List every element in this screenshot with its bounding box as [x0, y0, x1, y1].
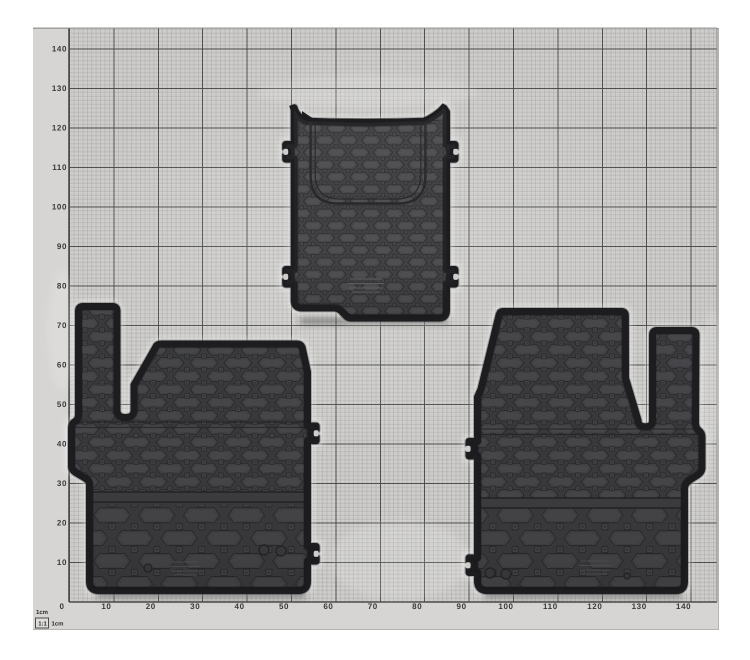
svg-text:50: 50 [57, 400, 67, 409]
svg-text:80: 80 [57, 281, 67, 290]
svg-text:100: 100 [498, 602, 513, 611]
svg-text:70: 70 [57, 321, 67, 330]
svg-text:10: 10 [101, 602, 111, 611]
svg-text:120: 120 [52, 123, 67, 132]
svg-text:110: 110 [52, 163, 67, 172]
svg-text:140: 140 [52, 44, 67, 53]
svg-text:20: 20 [146, 602, 156, 611]
svg-text:30: 30 [57, 479, 67, 488]
svg-text:90: 90 [457, 602, 467, 611]
svg-text:1:1: 1:1 [38, 621, 47, 628]
svg-text:110: 110 [543, 602, 558, 611]
svg-text:20: 20 [57, 518, 67, 527]
svg-text:10: 10 [57, 558, 67, 567]
svg-text:80: 80 [412, 602, 422, 611]
svg-text:120: 120 [587, 602, 602, 611]
svg-text:90: 90 [57, 242, 67, 251]
svg-text:0: 0 [59, 602, 64, 611]
svg-text:1cm: 1cm [52, 621, 64, 628]
svg-text:130: 130 [52, 84, 67, 93]
svg-text:140: 140 [676, 602, 691, 611]
svg-text:130: 130 [632, 602, 647, 611]
svg-text:40: 40 [57, 439, 67, 448]
svg-text:50: 50 [279, 602, 289, 611]
svg-text:30: 30 [190, 602, 200, 611]
svg-text:60: 60 [323, 602, 333, 611]
svg-text:1cm: 1cm [36, 609, 48, 616]
svg-text:100: 100 [52, 202, 67, 211]
svg-text:60: 60 [57, 360, 67, 369]
svg-text:40: 40 [235, 602, 245, 611]
svg-text:70: 70 [368, 602, 378, 611]
